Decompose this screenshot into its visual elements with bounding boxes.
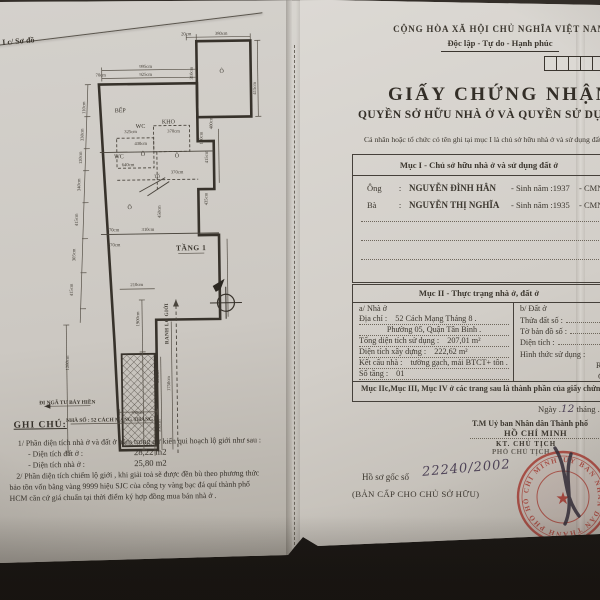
plan-label: Ô xyxy=(127,203,132,211)
floor-plan-page: I c/ Sơ đồ xyxy=(0,0,292,600)
address-value: 52 Cách Mạng Tháng 8 . xyxy=(395,314,476,323)
plan-label: 415cm xyxy=(204,150,209,163)
note-item-value: 28,22 m2 xyxy=(134,447,167,458)
plan-label: 415cm xyxy=(252,82,257,95)
dossier-number-label: Hồ sơ gốc số xyxy=(362,472,409,482)
dotted-line xyxy=(558,338,600,345)
plan-label: 430cm xyxy=(134,141,147,146)
plan-label: 310cm xyxy=(189,67,194,80)
serial-number-boxes xyxy=(545,56,600,71)
floor-plan-page-content: I c/ Sơ đồ xyxy=(0,0,300,600)
note-line: HCM căn cứ giá chuẩn tại thời điểm ký hợ… xyxy=(10,491,217,504)
floor-plan-drawing: 20cm380cm310cm415cm995cm925cm70cm110cm33… xyxy=(5,10,296,459)
plan-label: 330cm xyxy=(79,128,84,141)
authority-line: T.M Uỷ ban Nhân dân Thành phố xyxy=(472,419,588,428)
plan-label: 110cm xyxy=(81,101,86,114)
plan-label: 435cm xyxy=(203,192,208,205)
plan-label: TỔ xyxy=(154,174,161,179)
owner-birth: - Sinh năm :1935 xyxy=(511,200,577,210)
owner-birth: - Sinh năm :1937 xyxy=(511,183,577,193)
section1-heading: Mục I - Chủ sở hữu nhà ở và sử dụng đất … xyxy=(353,160,600,170)
note-item-label: - Diện tích đất ở : xyxy=(28,449,83,460)
plan-label: 380cm xyxy=(215,31,228,36)
plan-label: Ô xyxy=(219,67,224,75)
plan-label: 415cm xyxy=(69,283,74,296)
area-row: Diện tích : xyxy=(520,338,600,347)
plan-label: 130cm xyxy=(199,131,204,144)
binding-stitch-line xyxy=(294,45,295,550)
dotted-line xyxy=(361,221,600,222)
compass-icon xyxy=(210,279,243,319)
floors-label: Số tầng : xyxy=(359,369,388,378)
certificate-page: CỘNG HÒA XÃ HỘI CHỦ NGHĨA VIỆT NAM Độc l… xyxy=(300,0,600,600)
table-divider xyxy=(353,381,600,382)
national-header: CỘNG HÒA XÃ HỘI CHỦ NGHĨA VIỆT NAM xyxy=(300,24,600,34)
owner-name: NGUYỄN THỊ NGHĨA xyxy=(409,200,511,210)
plan-label: KHO xyxy=(162,119,176,125)
address-line2: Phường 05, Quận Tân Bình . xyxy=(359,325,509,336)
table-divider xyxy=(353,175,600,176)
total-area-value: 207,01 m² xyxy=(447,336,480,345)
certificate-intro: Cá nhân hoặc tổ chức có tên ghi tại mục … xyxy=(364,135,600,144)
map-label: Tờ bản đồ số : xyxy=(520,327,567,336)
plan-label: 335cm xyxy=(131,410,144,415)
dotted-line xyxy=(361,259,600,260)
date-day-handwritten: 12 xyxy=(561,403,574,415)
table-divider xyxy=(353,302,600,303)
plan-label: 370cm xyxy=(107,227,120,232)
plan-label: 925cm xyxy=(139,72,152,77)
plan-label: 995cm xyxy=(139,64,152,69)
plan-label: 305cm xyxy=(71,248,76,261)
colon: : xyxy=(391,183,409,193)
note-item-label: - Diện tích nhà ở : xyxy=(28,460,85,471)
plan-label: NHÀ SỐ : 52 CÁCH MẠNG THÁNG 8 xyxy=(66,415,158,424)
owner-title: Ông xyxy=(367,183,391,193)
plan-label: 70cm xyxy=(96,72,107,77)
photo-backdrop: I c/ Sơ đồ xyxy=(0,0,600,600)
structure-label: Kết cấu nhà : xyxy=(359,358,402,367)
plan-label: BẾP xyxy=(115,106,127,114)
floors-row: Số tầng : 01 xyxy=(359,369,509,380)
column-divider xyxy=(513,302,514,381)
plan-label: 1280cm xyxy=(65,355,70,370)
plan-label: WC xyxy=(136,124,146,130)
dotted-line xyxy=(361,240,600,241)
plan-label: 120cm xyxy=(78,151,83,164)
built-area-row: Diện tích xây dựng : 222,62 m² xyxy=(359,347,509,358)
plan-label: 640cm xyxy=(122,162,135,167)
plan-label: 415cm xyxy=(74,213,79,226)
owner-copy-note: (BẢN CẤP CHO CHỦ SỞ HỮU) xyxy=(352,489,479,499)
house-heading: a/ Nhà ở xyxy=(359,304,509,314)
issue-date: Ngày .12 tháng .1 xyxy=(538,403,600,415)
plan-label: 595cm xyxy=(155,370,160,383)
use-row: Hình thức sử dụng : xyxy=(520,350,600,359)
certificate-subtitle: QUYỀN SỞ HỮU NHÀ Ở VÀ QUYỀN SỬ DỤNG ĐẤT … xyxy=(358,109,600,121)
area-label: Diện tích : xyxy=(520,338,555,347)
built-area-label: Diện tích xây dựng : xyxy=(359,347,426,356)
colon: : xyxy=(391,200,409,210)
month-label: tháng . xyxy=(574,404,600,414)
private-label: Riêng : xyxy=(596,361,600,370)
dotted-line xyxy=(570,327,600,334)
plan-label: 1750cm xyxy=(166,376,171,391)
land-heading: b/ Đất ở xyxy=(520,304,600,313)
owner-row: Bà : NGUYỄN THỊ NGHĨA - Sinh năm :1935 -… xyxy=(353,200,600,210)
plan-label: 310cm xyxy=(142,227,155,232)
plan-label: 370cm xyxy=(171,169,184,174)
total-area-label: Tổng diện tích sử dụng : xyxy=(359,336,439,345)
plan-label: Ô xyxy=(141,150,146,158)
address-row: Địa chỉ : 52 Cách Mạng Tháng 8 . xyxy=(359,314,509,325)
plan-label: 20cm xyxy=(181,31,192,36)
built-area-value: 222,62 m² xyxy=(434,347,467,356)
owner-id: - CMND xyxy=(579,183,600,193)
note-item-value: 25,80 m2 xyxy=(134,458,167,469)
dotted-line xyxy=(470,438,600,439)
plan-label: 400cm xyxy=(208,116,213,129)
owner-row: Ông : NGUYỄN ĐÌNH HÂN - Sinh năm :1937 -… xyxy=(353,183,600,193)
owner-table: Mục I - Chủ sở hữu nhà ở và sử dụng đất … xyxy=(352,154,600,283)
serial-box xyxy=(592,56,600,71)
section2-heading: Mục II - Thực trạng nhà ở, đất ở xyxy=(353,288,600,298)
notes-title: GHI CHÚ: xyxy=(14,419,67,432)
floors-value: 01 xyxy=(396,369,404,378)
authority-city: HỒ CHÍ MINH xyxy=(504,428,567,438)
certificate-title: GIẤY CHỨNG NHẬN xyxy=(300,84,600,106)
parcel-row: Thửa đất số : xyxy=(520,316,600,325)
address-label: Địa chỉ : xyxy=(359,314,387,323)
plan-label: 450cm xyxy=(157,205,162,218)
plan-label: 1900cm xyxy=(135,311,140,326)
owner-title: Bà xyxy=(367,200,391,210)
parcel-label: Thửa đất số : xyxy=(520,316,563,325)
section2-footer: Mục IIc,Mục III, Mục IV ở các trang sau … xyxy=(361,384,600,393)
plan-label: 340cm xyxy=(76,178,81,191)
national-motto: Độc lập - Tự do - Hạnh phúc xyxy=(300,38,600,48)
structure-value: tường gạch, mái BTCT+ tôn . xyxy=(410,358,507,367)
plan-label: TẦNG 1 xyxy=(176,242,206,252)
owner-id: - CMND xyxy=(579,200,600,210)
plan-label: WC xyxy=(114,154,124,160)
motto-underline xyxy=(441,51,559,52)
plan-label: 210cm xyxy=(130,282,143,287)
plan-label: 950cm xyxy=(157,419,162,432)
plan-label: 370cm xyxy=(108,242,121,247)
dossier-number-handwritten: 22240/2002 xyxy=(422,457,512,480)
map-row: Tờ bản đồ số : xyxy=(520,327,600,336)
date-label: Ngày . xyxy=(538,404,561,414)
dotted-line xyxy=(566,316,600,323)
official-stamp: ỦY BAN NHÂN DÂN THÀNH PHỐ HỒ CHÍ MINH • … xyxy=(503,440,600,570)
plan-label: 370cm xyxy=(167,128,180,133)
structure-row: Kết cấu nhà : tường gạch, mái BTCT+ tôn … xyxy=(359,358,509,369)
status-table: Mục II - Thực trạng nhà ở, đất ở a/ Nhà … xyxy=(352,284,600,402)
owner-name: NGUYỄN ĐÌNH HÂN xyxy=(409,183,511,193)
plan-label: Ô xyxy=(175,151,180,159)
total-area-row: Tổng diện tích sử dụng : 207,01 m² xyxy=(359,336,509,347)
plan-label: RANH LỘ GIỚI xyxy=(162,303,171,344)
document-pages: I c/ Sơ đồ xyxy=(0,0,600,600)
